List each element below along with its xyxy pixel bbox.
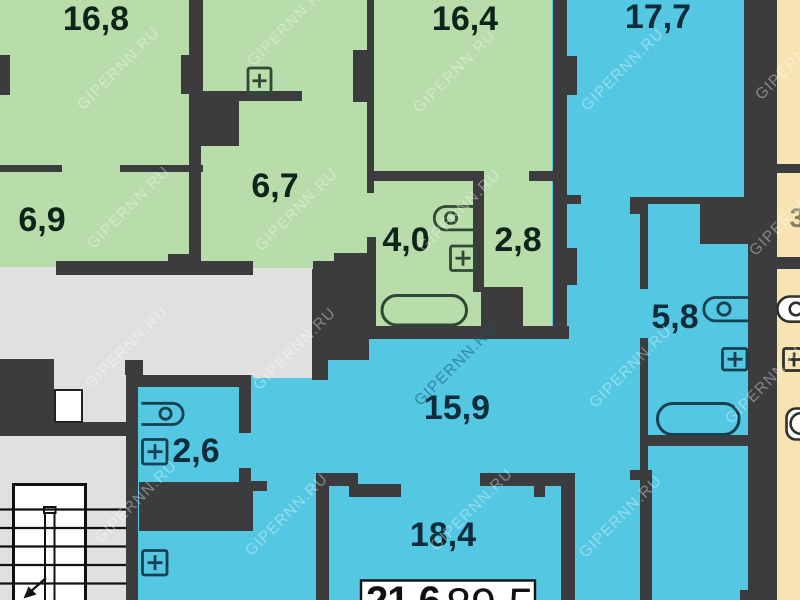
svg-text:6,7: 6,7 — [251, 167, 298, 205]
svg-text:89,5: 89,5 — [446, 579, 534, 600]
svg-text:2,8: 2,8 — [494, 221, 541, 259]
svg-text:6,9: 6,9 — [18, 201, 65, 239]
svg-text:2,6: 2,6 — [172, 432, 219, 470]
svg-text:21,6: 21,6 — [366, 579, 440, 600]
svg-text:16,8: 16,8 — [63, 0, 129, 38]
